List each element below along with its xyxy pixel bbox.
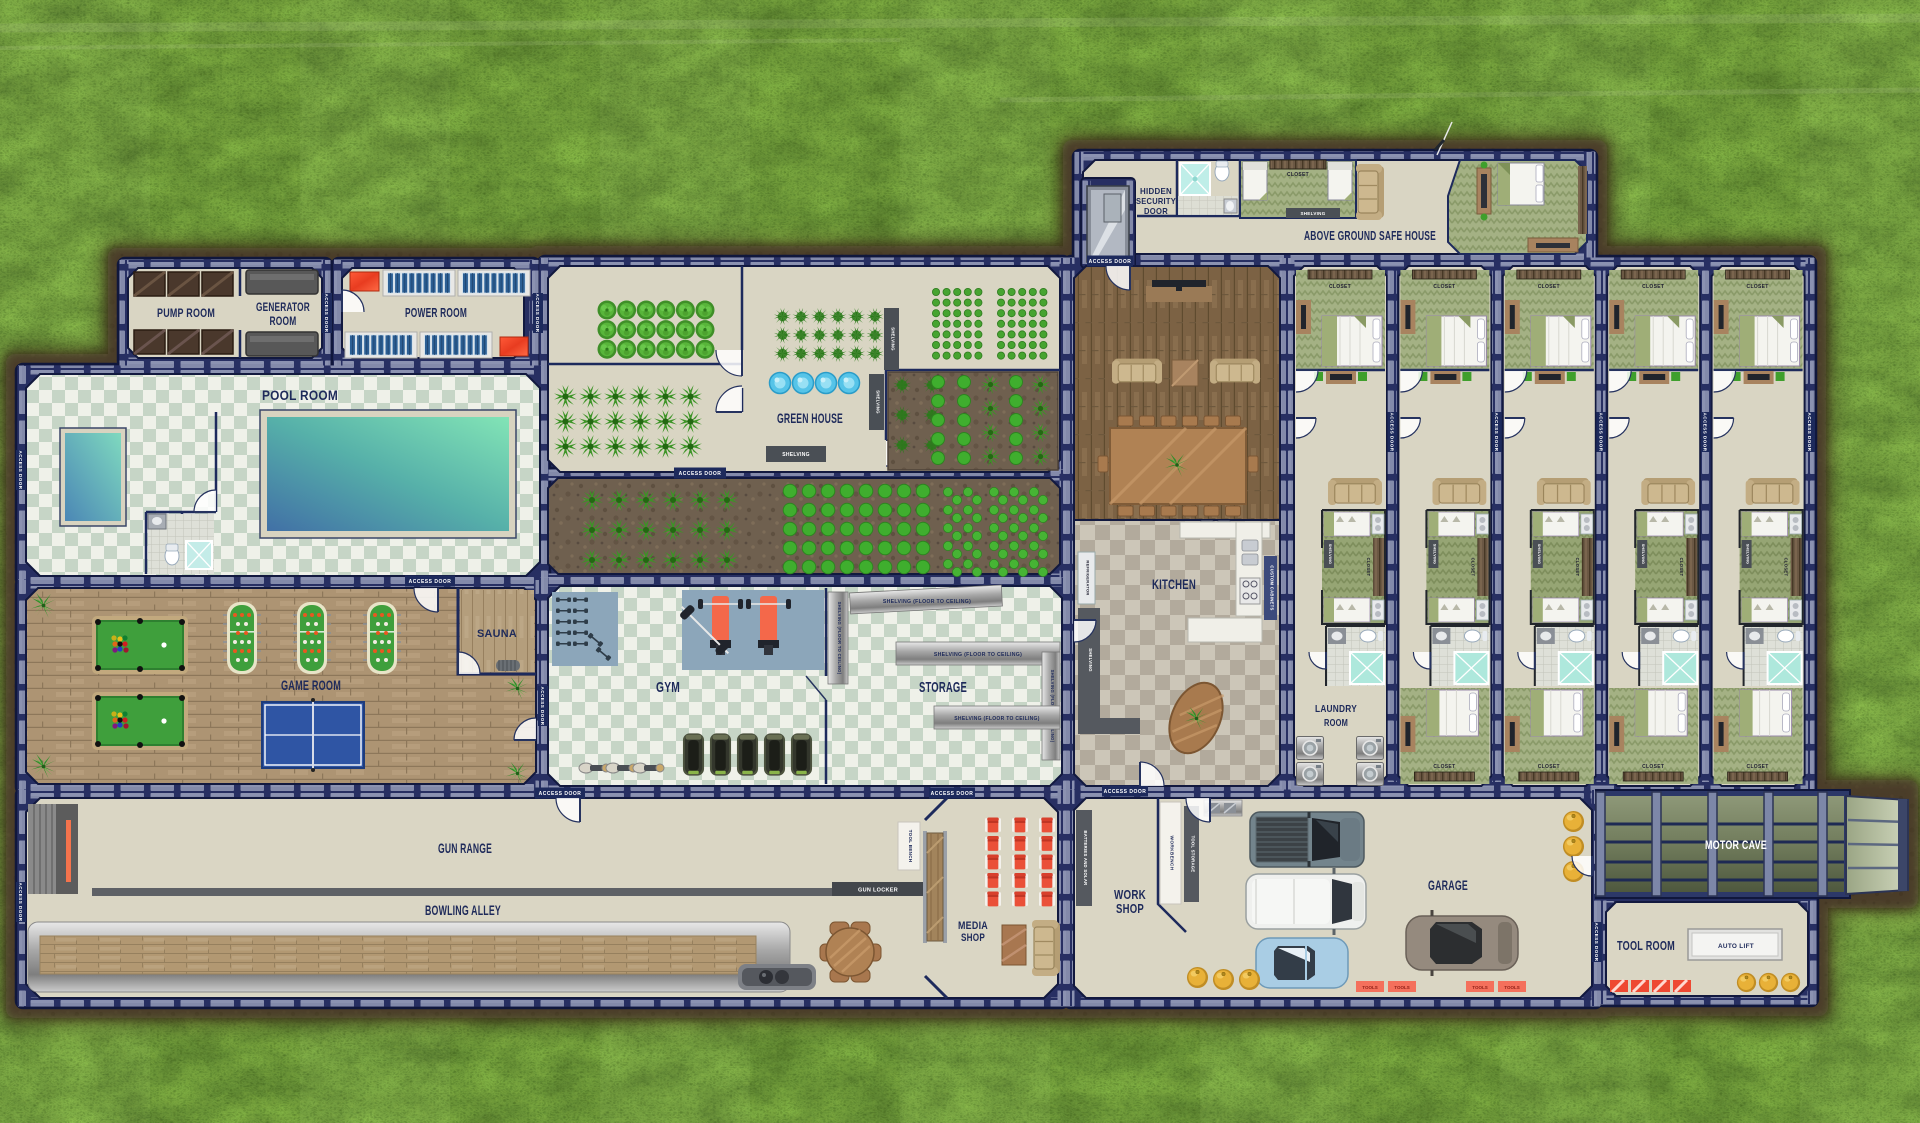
svg-text:GARAGE: GARAGE	[1428, 878, 1468, 893]
svg-text:SHELVING: SHELVING	[876, 390, 881, 414]
svg-text:SHELVING: SHELVING	[1746, 544, 1750, 565]
svg-text:BOWLING ALLEY: BOWLING ALLEY	[425, 902, 501, 918]
svg-text:WORKBENCH: WORKBENCH	[1169, 836, 1175, 871]
svg-text:ABOVE GROUND SAFE HOUSE: ABOVE GROUND SAFE HOUSE	[1304, 228, 1436, 243]
svg-text:CLOSET: CLOSET	[1287, 172, 1309, 178]
svg-text:CLOSET: CLOSET	[1642, 284, 1664, 290]
svg-text:ACCESS DOOR: ACCESS DOOR	[1089, 259, 1132, 265]
svg-text:ACCESS DOOR: ACCESS DOOR	[18, 450, 23, 489]
svg-text:DOOR: DOOR	[1144, 206, 1168, 216]
svg-text:GREEN HOUSE: GREEN HOUSE	[777, 410, 843, 426]
svg-text:SHELVING: SHELVING	[1088, 648, 1093, 672]
svg-text:CLOSET: CLOSET	[1679, 558, 1684, 577]
svg-text:ACCESS DOOR: ACCESS DOOR	[931, 791, 974, 797]
svg-text:GAME ROOM: GAME ROOM	[281, 677, 341, 693]
svg-text:SHELVING: SHELVING	[1641, 544, 1645, 565]
svg-text:SHELVING: SHELVING	[1537, 544, 1541, 565]
svg-text:GUN LOCKER: GUN LOCKER	[858, 888, 898, 894]
svg-text:REFRIGERATOR: REFRIGERATOR	[1086, 560, 1091, 595]
svg-text:LAUNDRY: LAUNDRY	[1315, 703, 1357, 715]
svg-text:GUN RANGE: GUN RANGE	[438, 840, 492, 856]
svg-text:ACCESS DOOR: ACCESS DOOR	[324, 293, 329, 332]
svg-text:PUMP ROOM: PUMP ROOM	[157, 306, 215, 320]
svg-text:SHOP: SHOP	[961, 932, 985, 944]
svg-text:ACCESS DOOR: ACCESS DOOR	[409, 579, 452, 585]
svg-text:CLOSET: CLOSET	[1433, 764, 1455, 770]
svg-text:CLOSET: CLOSET	[1575, 558, 1580, 577]
svg-text:ACCESS DOOR: ACCESS DOOR	[1703, 412, 1708, 451]
svg-text:POWER ROOM: POWER ROOM	[405, 306, 467, 320]
svg-text:SHELVING: SHELVING	[1432, 544, 1436, 565]
svg-text:ROOM: ROOM	[1324, 717, 1348, 729]
svg-text:SAUNA: SAUNA	[477, 628, 517, 640]
svg-text:SHELVING: SHELVING	[782, 452, 810, 458]
svg-text:ACCESS DOOR: ACCESS DOOR	[1598, 412, 1603, 451]
svg-text:ROOM: ROOM	[270, 316, 297, 328]
svg-text:WORK: WORK	[1114, 888, 1146, 902]
svg-text:SHELVING (FLOOR TO CEILING): SHELVING (FLOOR TO CEILING)	[837, 602, 842, 675]
svg-text:CLOSET: CLOSET	[1784, 558, 1789, 577]
svg-text:GENERATOR: GENERATOR	[256, 302, 310, 314]
svg-text:CLOSET: CLOSET	[1538, 284, 1560, 290]
svg-text:CLOSET: CLOSET	[1470, 558, 1475, 577]
svg-text:MEDIA: MEDIA	[958, 920, 988, 932]
svg-text:GYM: GYM	[656, 679, 680, 696]
svg-text:ACCESS DOOR: ACCESS DOOR	[1494, 412, 1499, 451]
svg-text:STORAGE: STORAGE	[919, 679, 967, 696]
svg-text:MOTOR CAVE: MOTOR CAVE	[1705, 838, 1767, 852]
svg-text:SHELVING: SHELVING	[891, 327, 896, 351]
svg-text:ACCESS DOOR: ACCESS DOOR	[540, 686, 545, 725]
svg-text:CUSTOM CABINETS: CUSTOM CABINETS	[1270, 565, 1275, 610]
svg-text:TOOL BENCH: TOOL BENCH	[908, 830, 913, 863]
svg-text:KITCHEN: KITCHEN	[1152, 576, 1196, 592]
svg-text:ACCESS DOOR: ACCESS DOOR	[535, 293, 540, 332]
svg-text:ACCESS DOOR: ACCESS DOOR	[1807, 412, 1812, 451]
svg-text:TOOLS: TOOLS	[1394, 985, 1409, 990]
svg-text:ACCESS DOOR: ACCESS DOOR	[1104, 789, 1147, 795]
svg-text:CLOSET: CLOSET	[1538, 764, 1560, 770]
svg-text:TOOLS: TOOLS	[1362, 985, 1377, 990]
svg-text:ACCESS DOOR: ACCESS DOOR	[1594, 922, 1599, 961]
svg-text:HIDDEN: HIDDEN	[1140, 186, 1172, 196]
svg-text:BATTERIES AND SOLAR: BATTERIES AND SOLAR	[1083, 830, 1088, 885]
svg-text:TOOLS: TOOLS	[1472, 985, 1487, 990]
svg-text:ACCESS DOOR: ACCESS DOOR	[1390, 412, 1395, 451]
svg-text:CLOSET: CLOSET	[1747, 284, 1769, 290]
svg-text:CLOSET: CLOSET	[1642, 764, 1664, 770]
svg-text:AUTO LIFT: AUTO LIFT	[1718, 943, 1754, 950]
svg-text:SHELVING: SHELVING	[1328, 544, 1332, 565]
svg-text:SHELVING (FLOOR TO CEILING): SHELVING (FLOOR TO CEILING)	[934, 652, 1022, 658]
svg-text:TOOLS: TOOLS	[1504, 985, 1519, 990]
svg-text:CLOSET: CLOSET	[1747, 764, 1769, 770]
svg-text:CLOSET: CLOSET	[1329, 284, 1351, 290]
svg-text:SHELVING: SHELVING	[1300, 211, 1325, 216]
svg-text:TOOL STORAGE: TOOL STORAGE	[1191, 836, 1196, 873]
svg-text:SHELVING (FLOOR TO CEILING): SHELVING (FLOOR TO CEILING)	[954, 716, 1039, 722]
svg-text:SHOP: SHOP	[1116, 902, 1144, 916]
svg-text:SHELVING (FLOOR TO CEILING): SHELVING (FLOOR TO CEILING)	[883, 599, 971, 605]
svg-text:CLOSET: CLOSET	[1366, 558, 1371, 577]
svg-text:ACCESS DOOR: ACCESS DOOR	[18, 882, 23, 921]
svg-text:TOOL ROOM: TOOL ROOM	[1617, 939, 1675, 953]
svg-text:POOL ROOM: POOL ROOM	[262, 387, 338, 403]
svg-text:ACCESS DOOR: ACCESS DOOR	[679, 471, 722, 477]
svg-text:CLOSET: CLOSET	[1433, 284, 1455, 290]
svg-text:SECURITY: SECURITY	[1136, 196, 1176, 206]
svg-text:ACCESS DOOR: ACCESS DOOR	[539, 791, 582, 797]
